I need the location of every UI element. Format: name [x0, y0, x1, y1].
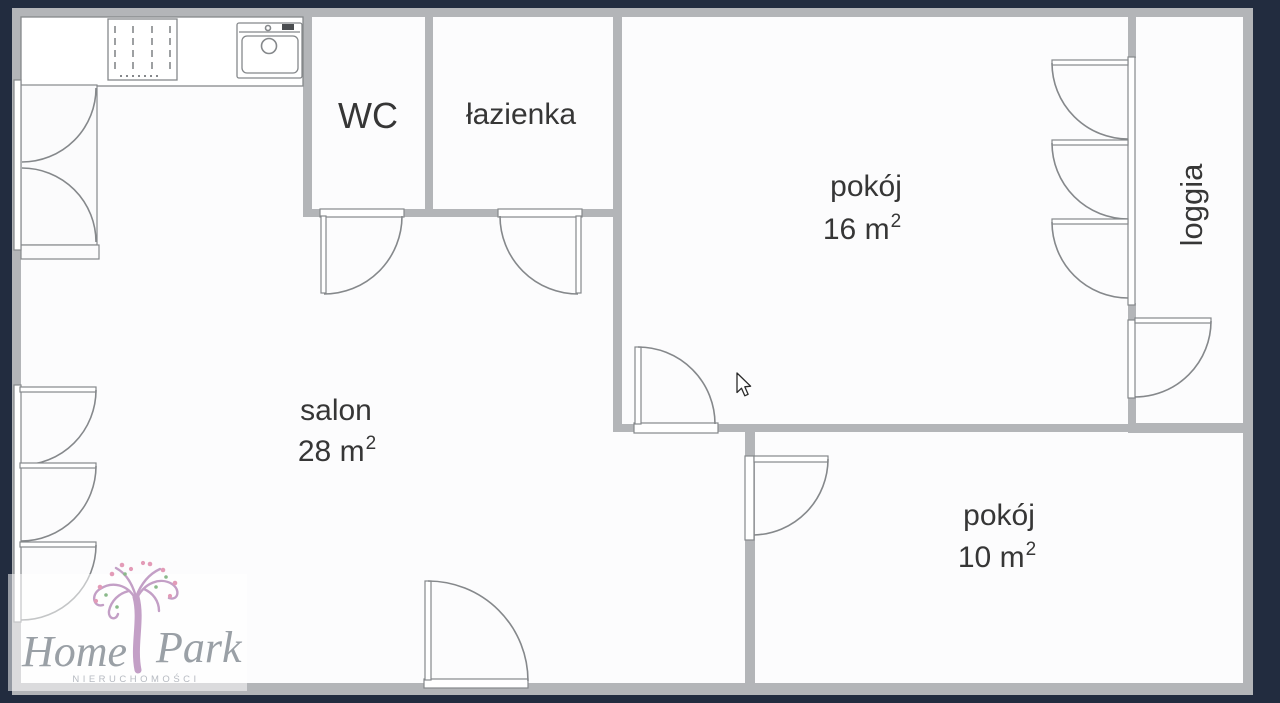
sink-icon [237, 23, 302, 78]
agency-logo: Home Park NIERUCHOMOŚCI [8, 561, 247, 691]
salon-label: salon [300, 394, 372, 427]
logo-subtitle: NIERUCHOMOŚCI [72, 673, 199, 685]
loggia-window [1128, 57, 1135, 305]
room-10-label: pokój [963, 499, 1035, 532]
room-16-area: 16 m2 [823, 211, 901, 246]
hall-window [14, 80, 21, 250]
logo-word-home: Home [21, 627, 127, 676]
room-10-area: 10 m2 [958, 539, 1036, 574]
logo-word-park: Park [155, 623, 243, 672]
floor-plan-screenshot: WC łazienka pokój 16 m2 salon 28 m2 pokó… [0, 0, 1280, 703]
loggia-label: loggia [1174, 163, 1209, 246]
wc-label: WC [338, 95, 398, 136]
closet [21, 85, 99, 259]
floor-plan-drawing: WC łazienka pokój 16 m2 salon 28 m2 pokó… [0, 0, 1280, 703]
room-16-label: pokój [830, 170, 902, 203]
salon-area: 28 m2 [298, 433, 376, 468]
bathroom-label: łazienka [466, 98, 576, 131]
cooktop-icon [108, 19, 177, 80]
